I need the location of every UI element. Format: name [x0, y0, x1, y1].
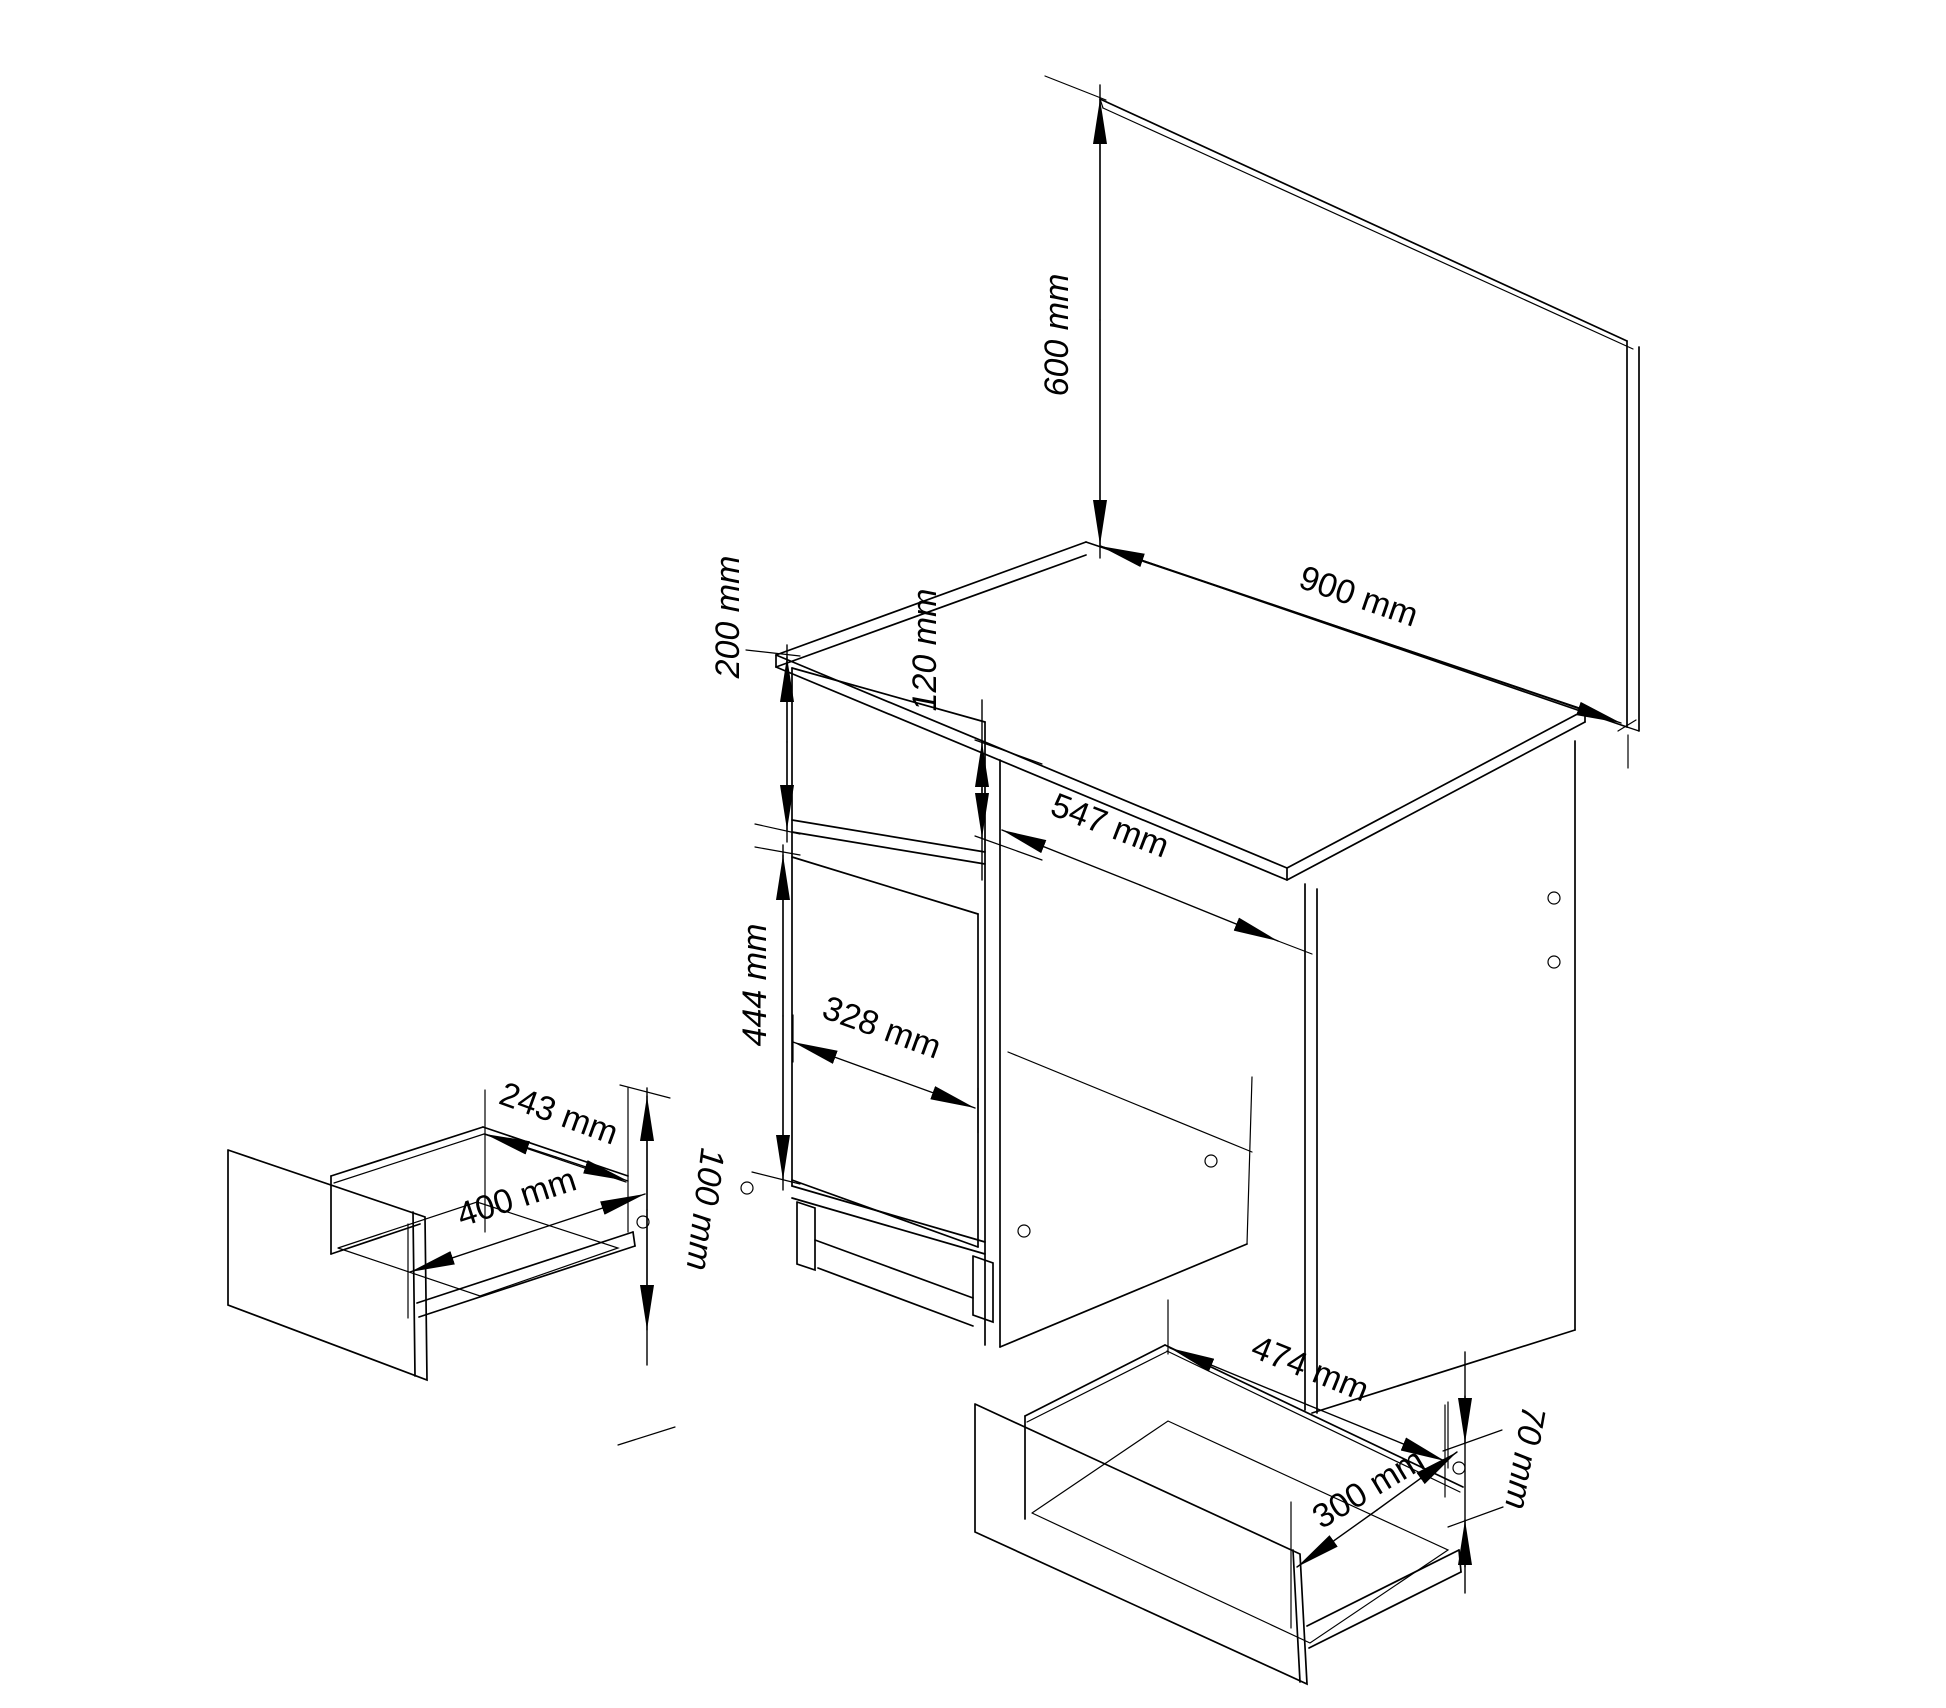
- dimension-label-300mm: 300 mm: [1306, 1441, 1431, 1537]
- dimension-label-120mm: 120 mm: [906, 589, 944, 712]
- dimension-label-70mm: 70 mm: [1497, 1403, 1552, 1512]
- screw-hole: [1453, 1462, 1465, 1474]
- desk-top-board: [776, 542, 1585, 880]
- dimension-label-100mm: 100 mm: [679, 1146, 732, 1273]
- screw-hole: [741, 1182, 753, 1194]
- dimension-label-474mm: 474 mm: [1246, 1328, 1374, 1409]
- right-side-panel: [1305, 741, 1575, 1413]
- dimension-label-243mm: 243 mm: [495, 1075, 623, 1153]
- dimension-door-width: 328 mm: [793, 989, 978, 1133]
- mirror-panel: [1100, 99, 1639, 768]
- bottom-drawer-detail: [975, 1345, 1465, 1684]
- cabinet-base-feet: [797, 1202, 993, 1326]
- dimension-top-section-height: 200 mm: [709, 556, 800, 842]
- technical-drawing-page: 600 mm 900 mm 200 mm 120 mm 547 mm: [0, 0, 1946, 1708]
- cabinet-front: [741, 668, 1252, 1347]
- dimension-label-400mm: 400 mm: [452, 1160, 581, 1234]
- dimension-door-height: 444 mm: [736, 845, 800, 1190]
- dimension-label-328mm: 328 mm: [818, 989, 946, 1067]
- dimension-kneehole-width: 547 mm: [1002, 786, 1312, 954]
- dimension-drawer-front-height: 120 mm: [906, 589, 1042, 880]
- screw-hole: [1548, 956, 1560, 968]
- screw-hole: [1205, 1155, 1217, 1167]
- dimension-small-drawer-height: 100 mm: [618, 1088, 731, 1445]
- screw-hole: [1018, 1225, 1030, 1237]
- small-drawer-detail: [228, 1127, 649, 1380]
- dimension-label-444mm: 444 mm: [736, 924, 774, 1047]
- dimension-label-600mm: 600 mm: [1038, 274, 1076, 397]
- dimension-mirror-height: 600 mm: [1038, 76, 1106, 558]
- dimension-label-547mm: 547 mm: [1046, 786, 1174, 865]
- dressing-table-drawing: 600 mm 900 mm 200 mm 120 mm 547 mm: [0, 0, 1946, 1708]
- dimension-label-200mm: 200 mm: [709, 556, 747, 680]
- dimension-label-900mm: 900 mm: [1294, 559, 1423, 635]
- screw-hole: [1548, 892, 1560, 904]
